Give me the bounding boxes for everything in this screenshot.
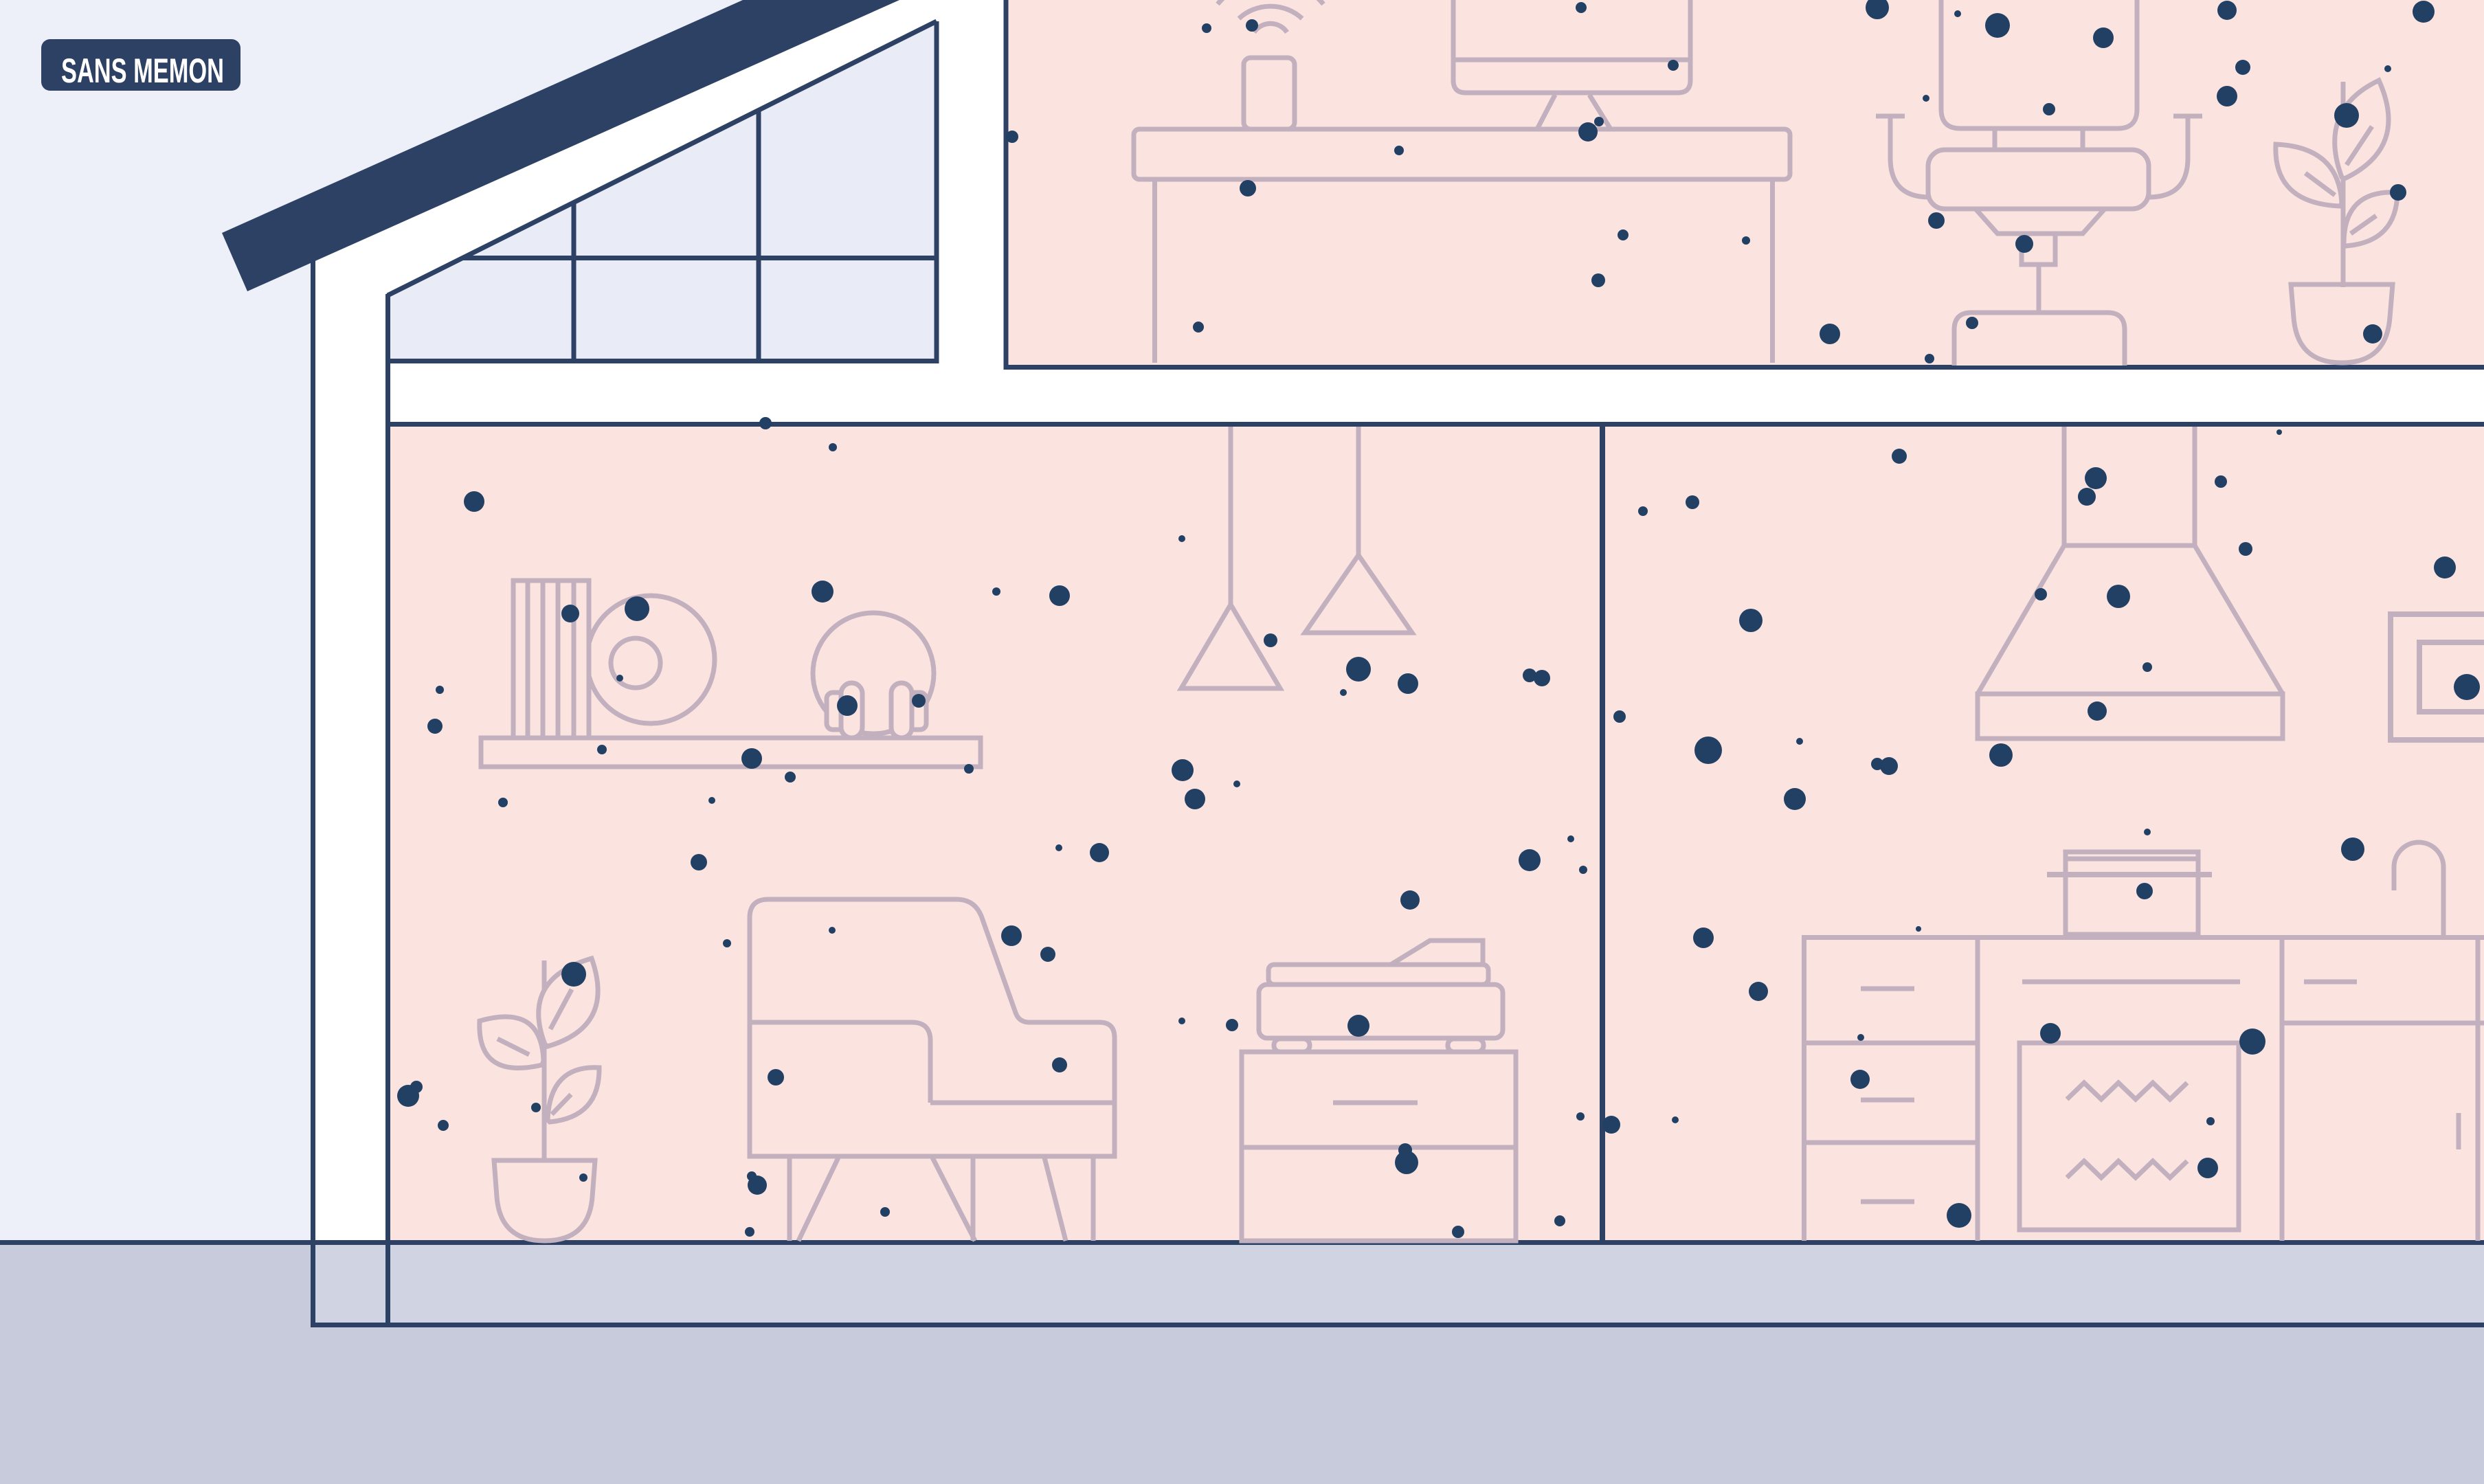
svg-text:SANS MEMON: SANS MEMON: [61, 52, 224, 90]
